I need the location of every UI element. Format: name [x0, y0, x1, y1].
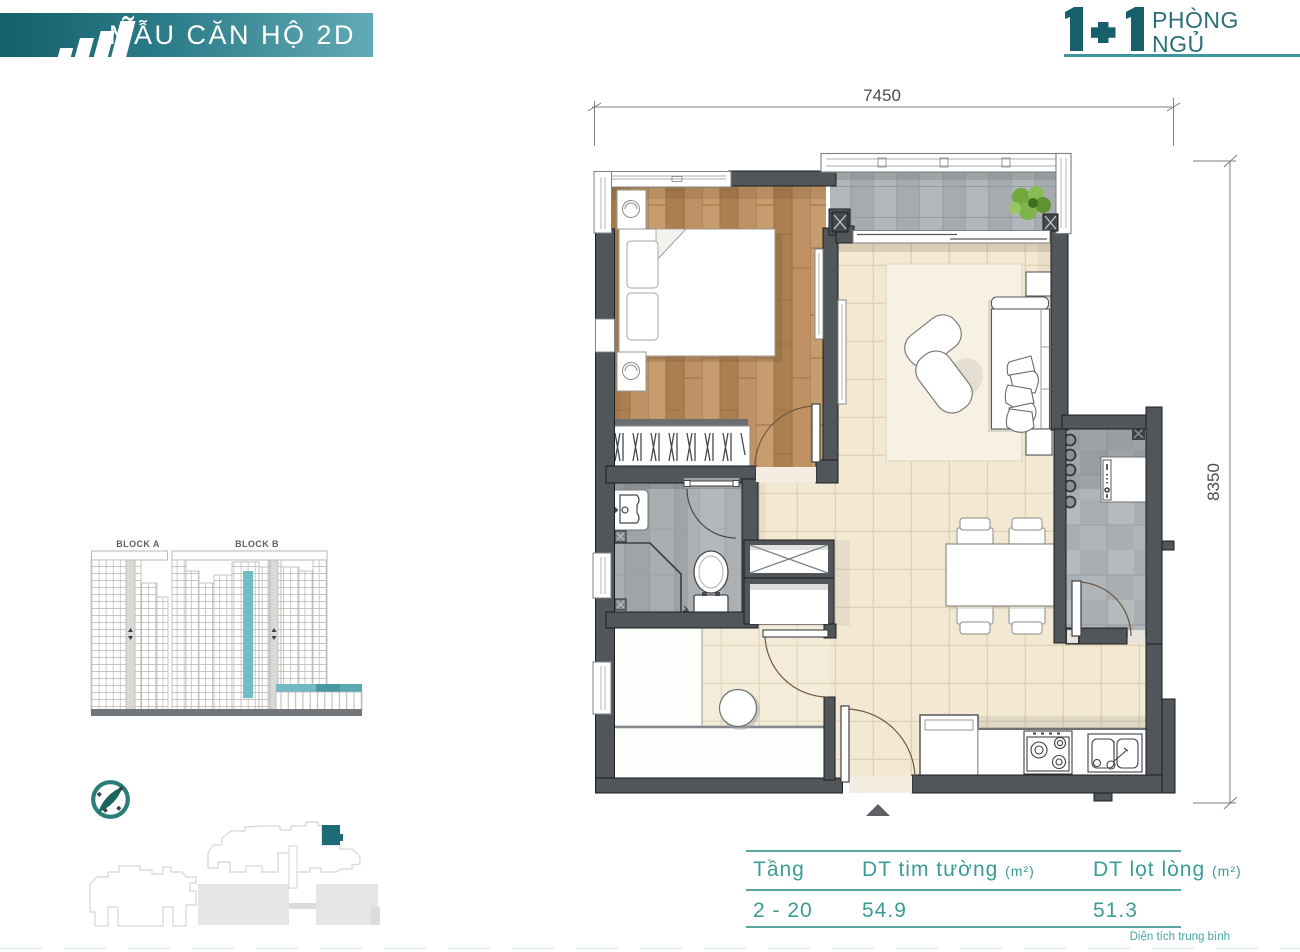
svg-text:BLOCK A: BLOCK A [116, 539, 160, 549]
svg-text:7450: 7450 [863, 86, 901, 105]
svg-text:8350: 8350 [1204, 463, 1223, 501]
svg-text:BLOCK B: BLOCK B [235, 539, 279, 549]
